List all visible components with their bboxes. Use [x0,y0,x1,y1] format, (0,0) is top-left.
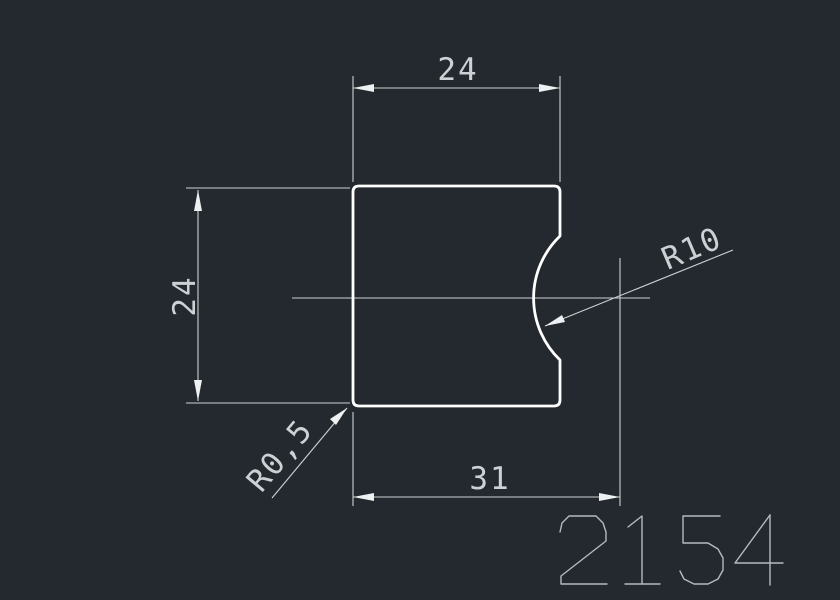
arrowhead-left-icon [353,493,374,501]
part-number-digit [628,516,642,584]
part-number [560,515,783,585]
arrowhead-right-icon [599,493,620,501]
arrowhead-icon [545,315,565,326]
corner-fillet-label: R0,5 [240,412,321,498]
notch-radius-label: R10 [657,220,728,277]
arrowhead-right-icon [539,84,560,92]
dimension-bottom-width-label: 31 [469,461,510,497]
dimension-top-width: 24 [353,52,560,182]
dimension-top-width-label: 24 [437,52,478,88]
arrowhead-left-icon [353,84,374,92]
cad-drawing: 24 24 31 R10 R0,5 [0,0,840,600]
leader-notch-radius: R10 [545,220,733,326]
part-number-digit [735,515,783,563]
arrowhead-icon [330,408,347,425]
dimension-left-height: 24 [167,188,350,403]
cad-drawing-canvas: 24 24 31 R10 R0,5 [0,0,840,600]
leader-corner-fillet: R0,5 [240,408,347,499]
arrowhead-up-icon [194,190,202,211]
part-number-digit [560,516,607,584]
part-outline [353,186,560,406]
dimension-left-height-label: 24 [167,275,203,316]
part-number-digit [680,516,723,584]
dimension-bottom-width: 31 [353,412,620,506]
arrowhead-down-icon [194,380,202,401]
